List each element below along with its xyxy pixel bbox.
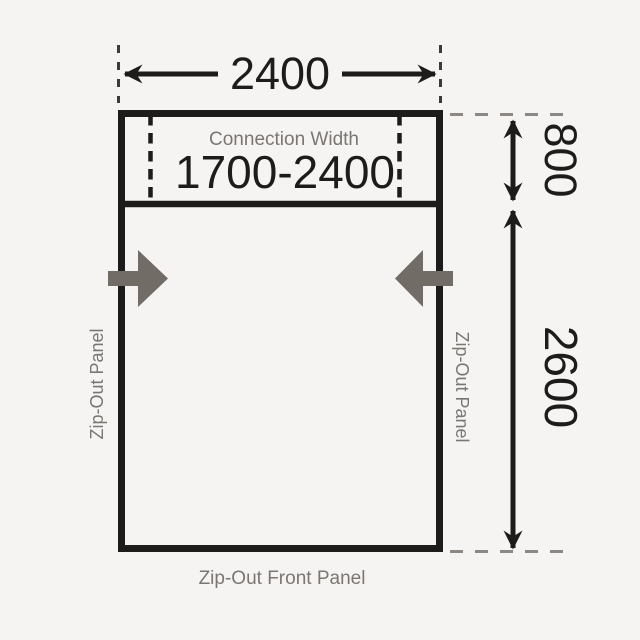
connection-width-value: 1700-2400 [175, 146, 395, 198]
diagram-svg: 2400 Connection Width 1700-2400 800 2600… [0, 0, 640, 640]
main-depth-value: 2600 [535, 326, 587, 428]
left-panel-label: Zip-Out Panel [87, 328, 107, 439]
dimension-diagram: 2400 Connection Width 1700-2400 800 2600… [0, 0, 640, 640]
right-panel-label: Zip-Out Panel [452, 331, 472, 442]
top-width-value: 2400 [230, 48, 330, 99]
connection-depth-value: 800 [535, 122, 586, 197]
front-panel-label: Zip-Out Front Panel [199, 568, 366, 589]
